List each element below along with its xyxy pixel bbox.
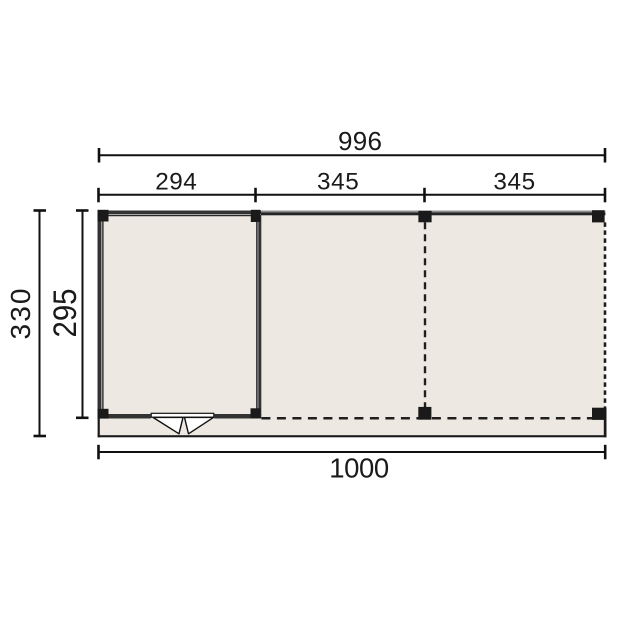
svg-text:330: 330	[5, 289, 36, 340]
svg-text:294: 294	[155, 169, 197, 196]
svg-text:345: 345	[493, 169, 535, 196]
svg-text:295: 295	[47, 289, 83, 338]
svg-text:345: 345	[317, 169, 359, 196]
svg-text:996: 996	[338, 126, 382, 156]
svg-text:1000: 1000	[329, 452, 389, 483]
